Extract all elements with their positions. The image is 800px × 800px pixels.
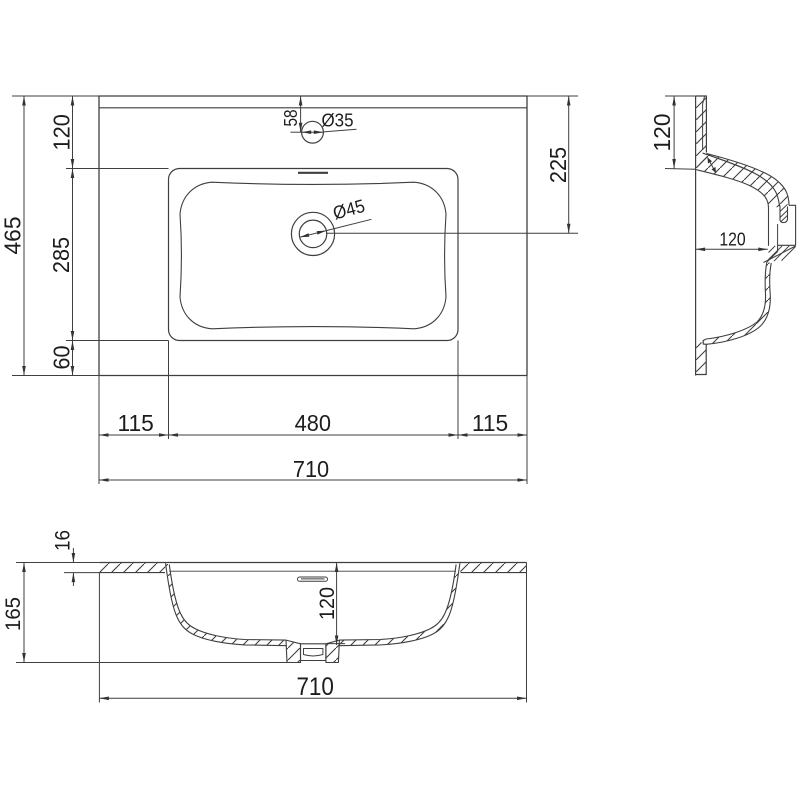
svg-text:Ø35: Ø35 bbox=[322, 110, 354, 131]
svg-text:120: 120 bbox=[316, 587, 339, 620]
svg-text:480: 480 bbox=[295, 410, 331, 436]
svg-text:Ø45: Ø45 bbox=[331, 195, 367, 224]
svg-text:465: 465 bbox=[0, 217, 26, 255]
svg-text:285: 285 bbox=[48, 237, 74, 273]
svg-text:16: 16 bbox=[52, 530, 75, 551]
svg-text:710: 710 bbox=[293, 456, 329, 482]
svg-text:115: 115 bbox=[472, 410, 508, 436]
svg-text:165: 165 bbox=[1, 597, 25, 631]
svg-text:225: 225 bbox=[545, 147, 571, 183]
svg-text:58: 58 bbox=[281, 110, 301, 127]
svg-text:710: 710 bbox=[296, 673, 334, 701]
svg-text:120: 120 bbox=[48, 114, 74, 150]
svg-text:120: 120 bbox=[649, 114, 675, 152]
svg-text:120: 120 bbox=[719, 228, 745, 249]
svg-text:60: 60 bbox=[48, 345, 74, 369]
svg-text:115: 115 bbox=[118, 410, 154, 436]
